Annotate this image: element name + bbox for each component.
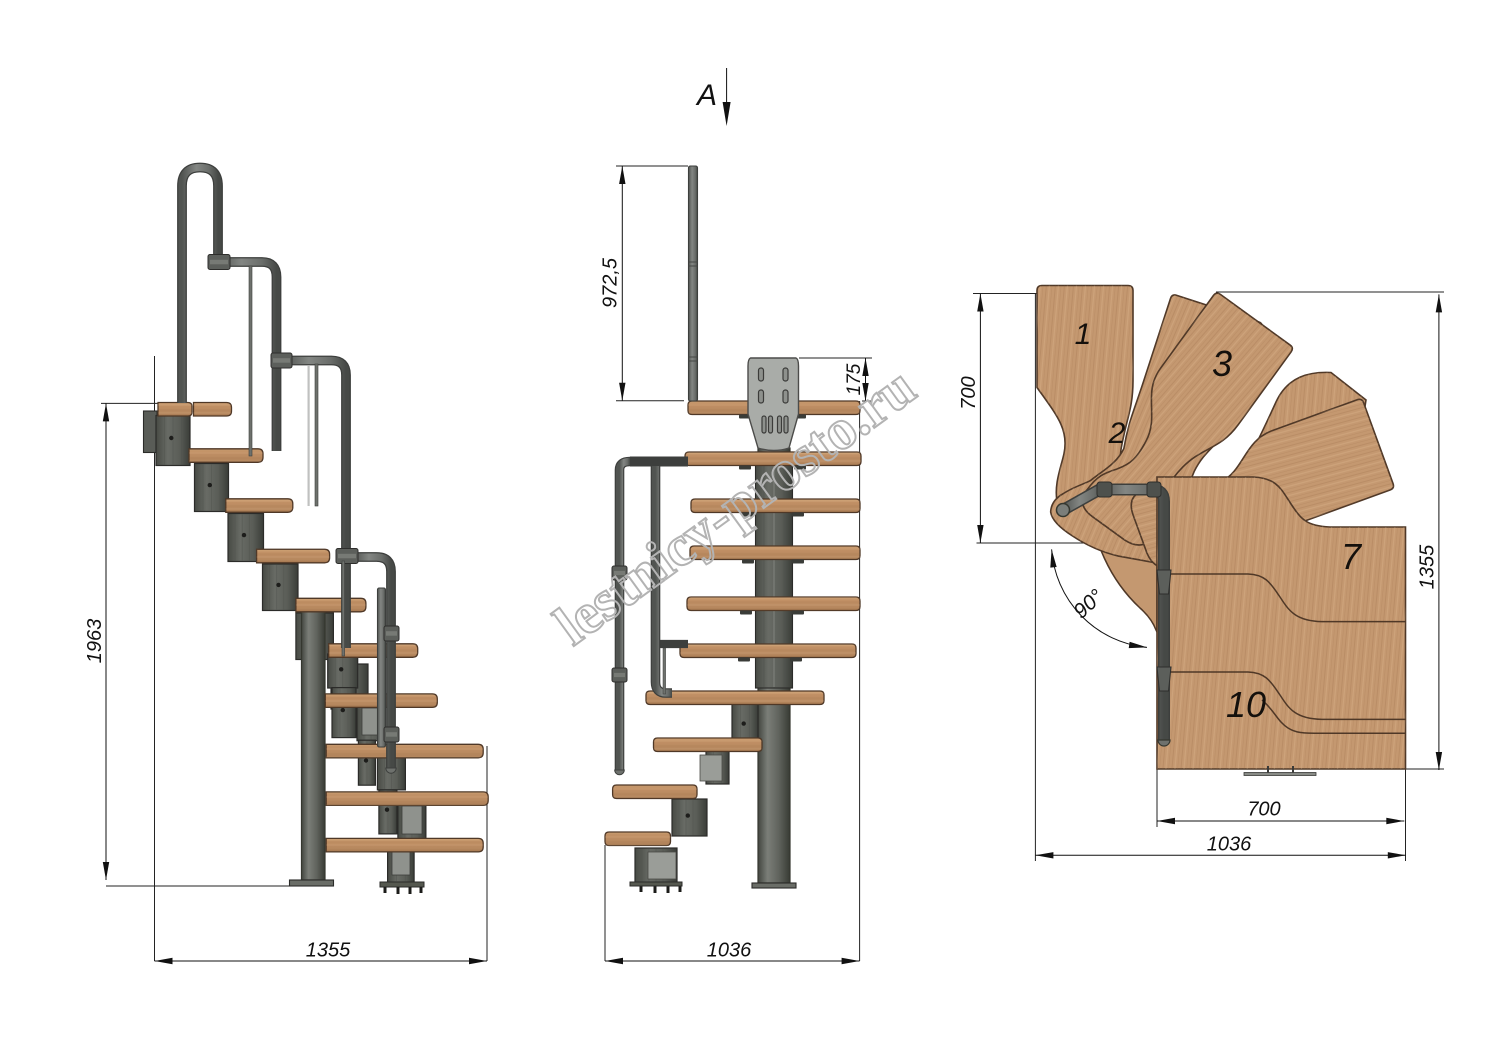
svg-text:1963: 1963 [84,619,106,664]
svg-text:A: A [695,79,717,112]
svg-text:700: 700 [1247,799,1280,821]
svg-text:1: 1 [1075,318,1092,351]
svg-text:1355: 1355 [1417,544,1439,589]
svg-text:3: 3 [1212,343,1232,384]
svg-text:2: 2 [1108,417,1126,450]
svg-text:1355: 1355 [306,940,351,962]
svg-text:10: 10 [1226,684,1266,725]
svg-text:700: 700 [958,376,980,409]
svg-text:7: 7 [1341,536,1363,577]
svg-text:1036: 1036 [1207,834,1252,856]
svg-text:1036: 1036 [707,940,752,962]
svg-text:972,5: 972,5 [600,257,622,308]
